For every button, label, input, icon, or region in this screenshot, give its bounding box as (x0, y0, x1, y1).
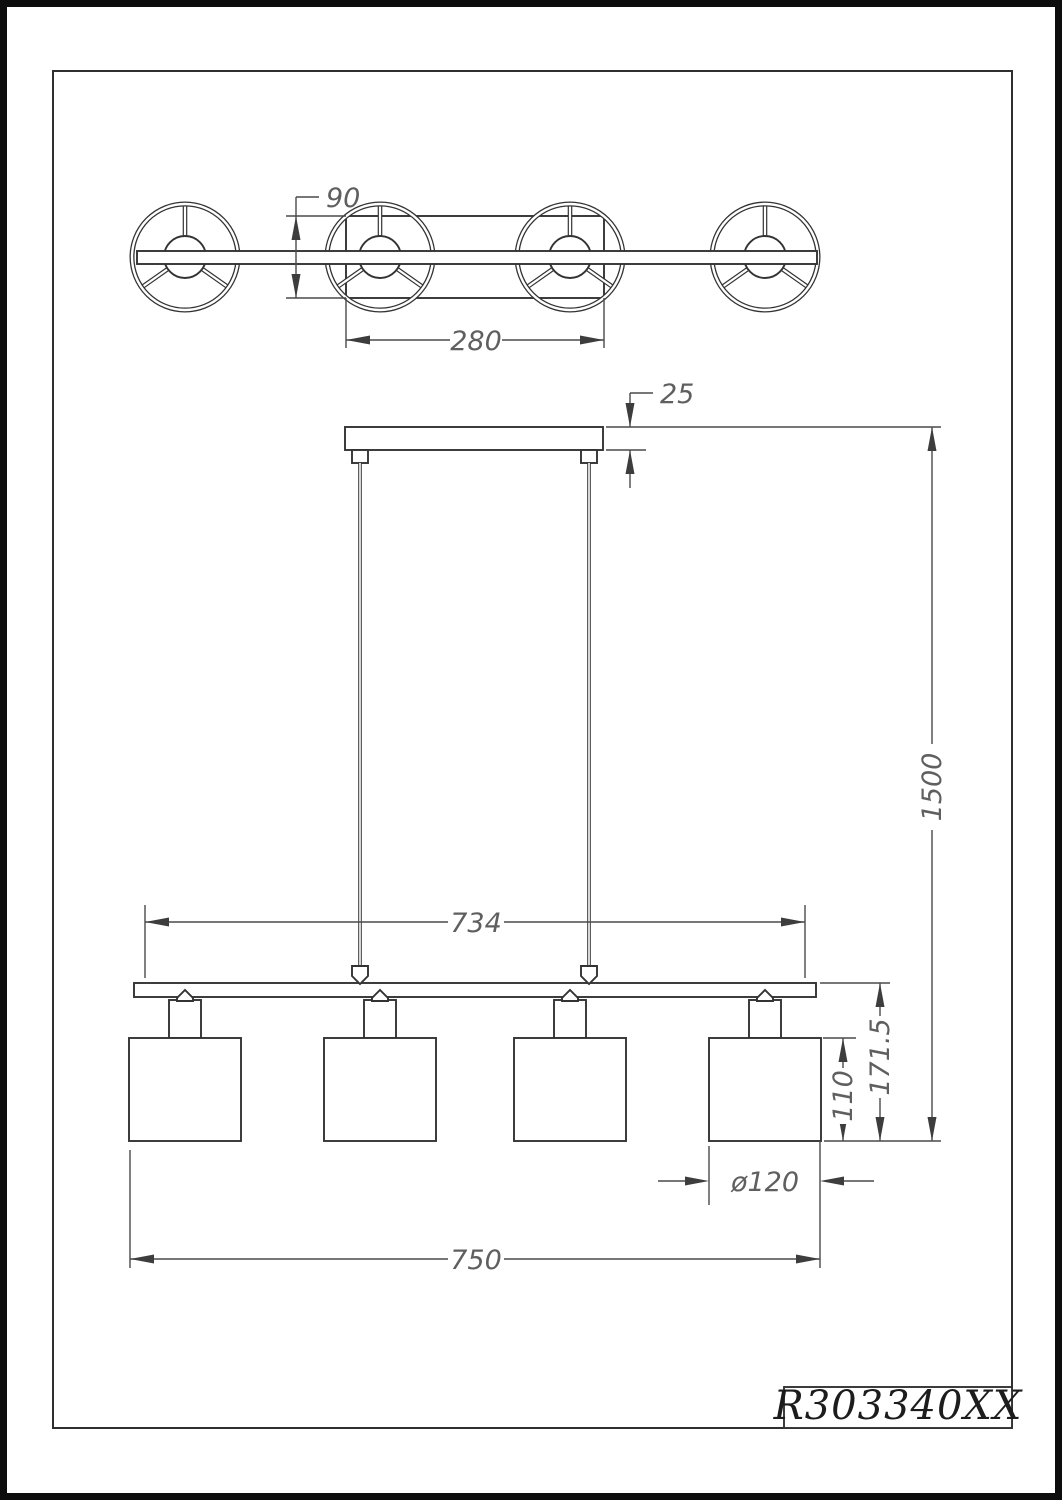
drawing-page: 90 280 25 (0, 0, 1062, 1500)
dim-110-label: 110 (828, 1070, 859, 1122)
dim-1500-label: 1500 (917, 753, 948, 822)
part-number: R303340XX (773, 1383, 1023, 1429)
dimension-canopy-width: 280 (346, 298, 604, 357)
technical-drawing: 90 280 25 (0, 0, 1062, 1500)
dim-750-label: 750 (450, 1245, 502, 1276)
dim-734-label: 734 (450, 908, 502, 939)
dim-25-label: 25 (660, 379, 694, 410)
dimension-suspension-span: 734 (145, 905, 805, 978)
front-view (129, 427, 821, 1141)
dim-280-label: 280 (450, 326, 502, 357)
dimension-canopy-thickness: 25 (606, 379, 694, 488)
dimension-overall-drop: 1500 (916, 427, 948, 1141)
canopy-wire-grip-right (581, 450, 597, 463)
outer-border (4, 4, 1059, 1497)
dim-90-label: 90 (326, 183, 360, 214)
front-view-bar (134, 983, 816, 997)
dim-120-label: ø120 (730, 1167, 799, 1198)
canopy-wire-grip-left (352, 450, 368, 463)
front-view-shade-2 (324, 990, 436, 1141)
title-block: R303340XX (773, 1383, 1023, 1429)
dimension-shade-height: 110 (827, 1038, 859, 1141)
dimension-fixture-body-height: 171.5 (864, 983, 896, 1141)
front-view-shade-4 (709, 990, 821, 1141)
wire-cone-right (581, 966, 597, 984)
front-view-shade-3 (514, 990, 626, 1141)
front-view-shade-1 (129, 990, 241, 1141)
front-view-canopy (345, 427, 603, 450)
top-view (132, 204, 818, 310)
dimension-overall-length: 750 (130, 1141, 820, 1276)
dim-171-5-label: 171.5 (865, 1018, 896, 1095)
dimension-shade-diameter: ø120 (658, 1146, 874, 1205)
wire-cone-left (352, 966, 368, 984)
top-view-bar (137, 251, 817, 264)
